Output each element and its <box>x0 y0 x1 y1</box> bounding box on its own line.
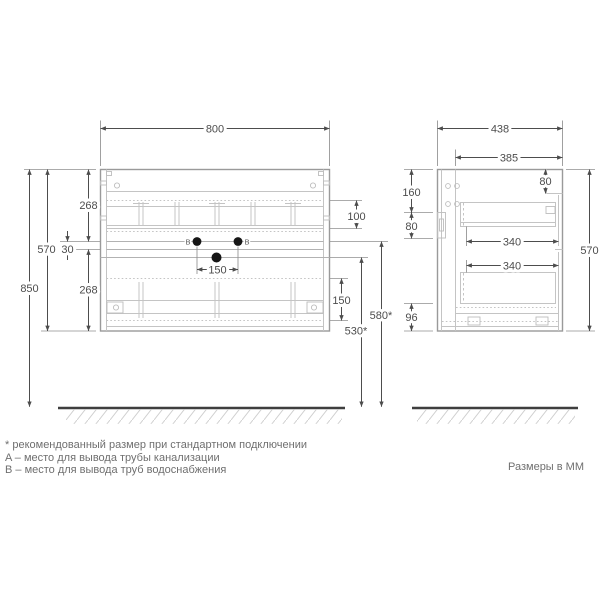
floor-hatch-front <box>66 410 342 424</box>
dim-side-depth: 438 <box>491 124 509 136</box>
dim-side-back-opening: 80 <box>405 221 417 233</box>
dim-front-cabinet-height: 570 <box>37 244 55 256</box>
dim-front-width: 800 <box>206 124 224 136</box>
units-note: Размеры в ММ <box>508 461 584 473</box>
dim-side-front-apron: 80 <box>539 176 551 188</box>
product-dimensions-diagram: B B <box>0 0 600 600</box>
water-outlet-marker-left <box>193 237 202 246</box>
side-view-drawing <box>438 170 563 332</box>
b-marker-label-right: B <box>245 237 250 246</box>
footnote-a: A – место для вывода трубы канализации <box>5 452 307 465</box>
drain-outlet-marker <box>212 253 222 263</box>
front-view-drawing <box>101 170 330 332</box>
floor-hatch-side <box>417 410 575 424</box>
dim-side-bottom-clearance: 96 <box>405 312 417 324</box>
dim-side-height: 570 <box>580 245 598 257</box>
dim-front-water-height: 580* <box>370 310 393 322</box>
dim-front-gap: 30 <box>61 244 73 256</box>
dim-front-drawer-bottom: 268 <box>79 285 97 297</box>
dim-front-pipe-spacing: 150 <box>208 265 226 277</box>
footnotes: * рекомендованный размер при стандартном… <box>5 439 307 477</box>
b-marker-label-left: B <box>185 237 190 246</box>
technical-drawing: B B <box>0 0 600 600</box>
floor-lines <box>58 408 578 424</box>
dim-front-drawer-top: 268 <box>79 200 97 212</box>
dim-side-inner-depth: 385 <box>500 153 518 165</box>
footnote-b: B – место для вывода труб водоснабжения <box>5 464 307 477</box>
dim-front-drawer-inner: 150 <box>332 295 350 307</box>
dim-front-drain-height: 530* <box>345 326 368 338</box>
dim-front-top-offset: 100 <box>347 211 365 223</box>
front-dimension-lines <box>30 129 382 407</box>
dim-side-drawer-depth-top: 340 <box>503 237 521 249</box>
dim-front-mount-height: 850 <box>20 283 38 295</box>
dim-side-back-top: 160 <box>402 187 420 199</box>
water-outlet-marker-right <box>234 237 243 246</box>
dim-side-drawer-depth-bottom: 340 <box>503 261 521 273</box>
footnote-asterisk: * рекомендованный размер при стандартном… <box>5 439 307 452</box>
